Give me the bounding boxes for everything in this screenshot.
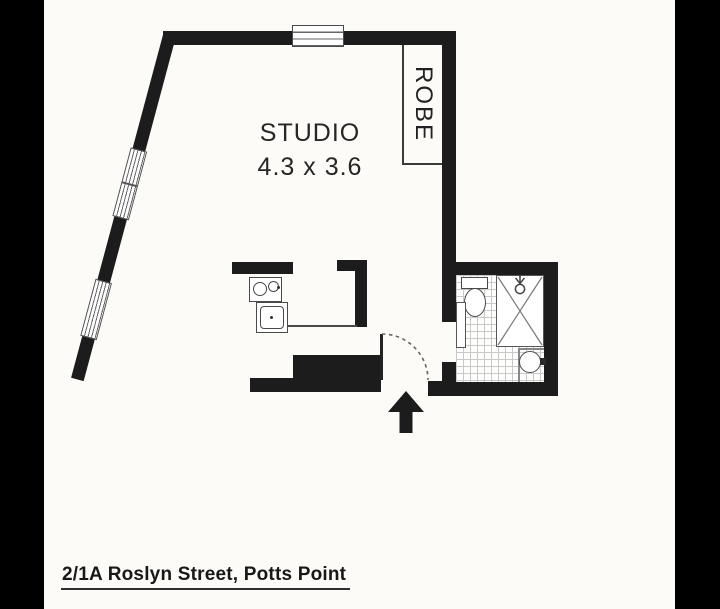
room-dimensions: 4.3 x 3.6 [235,150,385,184]
robe: ROBE [402,45,442,165]
floor-plan: ROBE STUDIO 4.3 x 3.6 [0,0,720,609]
sink [256,302,288,333]
basin-tap-icon [540,358,546,365]
bottom-wall-thick-section [293,355,381,392]
entry-door-arc [382,334,428,380]
vanity-line-top [518,348,544,350]
window-kitchen [80,279,112,340]
window-upper-divider [122,181,137,186]
toilet-bowl [464,288,486,317]
cooktop-knob [277,286,280,289]
entry-door-leaf [380,334,383,380]
kitchen-counter-line [288,325,357,327]
window-upper [112,147,147,220]
bathroom-right-wall [544,262,558,395]
bathroom-wall-stub [442,362,456,388]
kitchen-partition-wall [355,260,367,327]
cooktop [249,277,282,302]
basin [519,351,541,373]
entry-arrow-icon [388,391,424,433]
footer: 2/1A Roslyn Street, Potts Point [61,564,350,586]
room-label-block: STUDIO 4.3 x 3.6 [235,116,385,184]
right-wall [442,45,456,322]
kitchen-wall [232,262,293,274]
bathroom-door-leaf [456,302,466,348]
sink-drain [270,316,273,319]
burner-left [253,282,267,296]
address: 2/1A Roslyn Street, Potts Point [61,564,350,590]
room-label: STUDIO [235,116,385,150]
bathroom-top-wall [442,262,558,275]
slanted-left-wall [71,31,176,381]
robe-label: ROBE [409,66,437,142]
window-top [292,25,344,47]
shower [496,275,544,347]
